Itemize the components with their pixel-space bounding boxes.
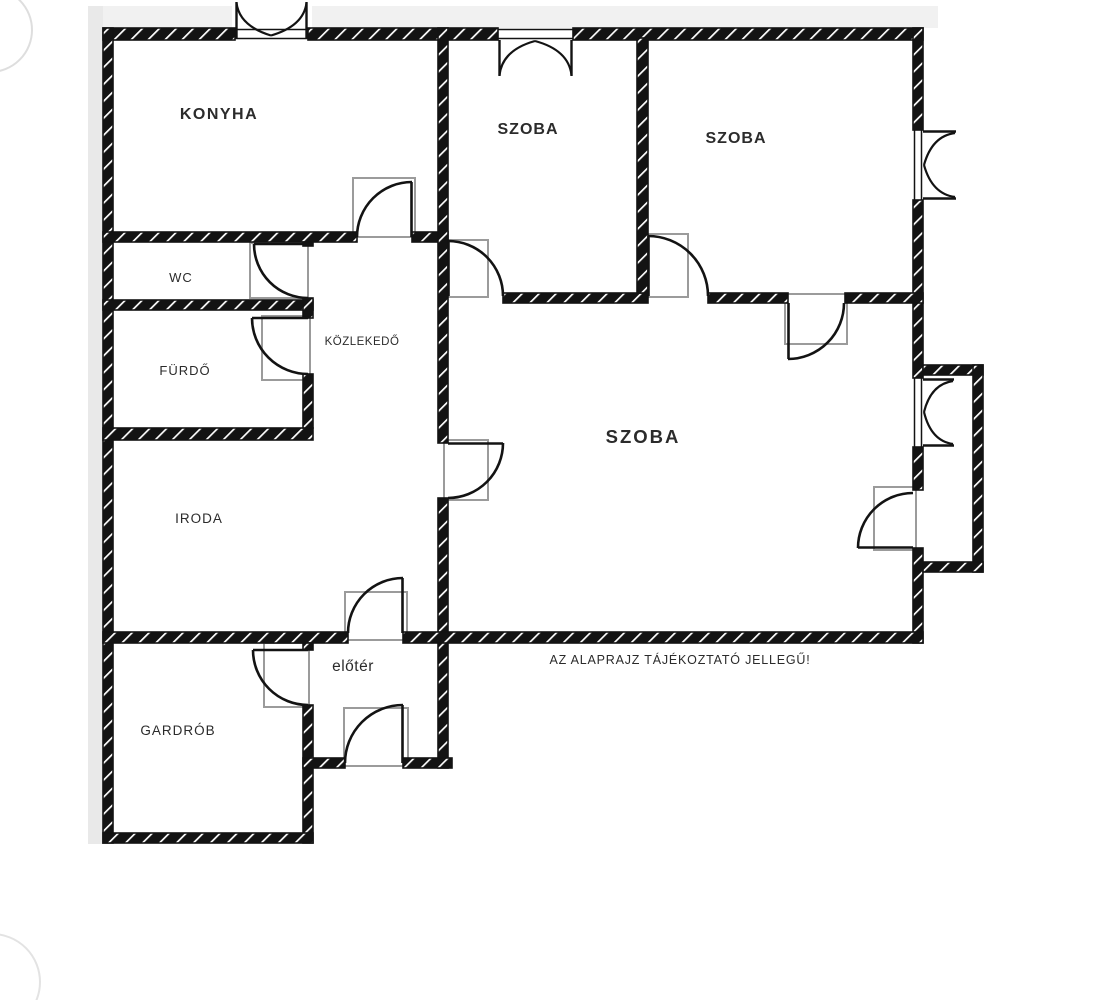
label-wc: WC [169,270,193,285]
wall-segment [303,705,313,843]
watermark-circle-top [0,0,32,72]
label-szoba-mid: SZOBA [498,121,559,138]
interior-gardrob [103,643,313,843]
wall-segment [303,374,313,428]
wall-segment [913,548,923,643]
label-szoba-nagy: SZOBA [606,426,681,447]
watermark-circle-bottom [0,934,40,1000]
label-kozlekedo: KÖZLEKEDŐ [325,334,400,348]
label-gardrob: GARDRÓB [140,723,215,738]
wall-segment [103,232,357,242]
wall-segment [913,447,923,490]
label-furdo: FÜRDŐ [159,363,210,378]
interior-window-top [232,0,312,29]
label-szoba-right: SZOBA [706,130,767,147]
wall-segment [913,28,923,130]
wall-segment [913,200,923,378]
interior-bay [920,373,980,565]
wall-segment [708,293,788,303]
label-iroda: IRODA [175,511,223,526]
wall-segment [103,300,313,310]
interior-eloter [303,643,453,768]
wall-segment [573,28,923,40]
wall-segment [103,833,313,843]
wall-segment [403,632,923,643]
wall-segment [103,28,235,40]
disclaimer-text: AZ ALAPRAJZ TÁJÉKOZTATÓ JELLEGŰ! [549,652,810,667]
label-eloter: előtér [332,658,374,675]
label-konyha: KONYHA [180,106,258,123]
wall-segment [303,298,313,318]
floor-plan-drawing: KONYHA SZOBA SZOBA WC FÜRDŐ KÖZLEKEDŐ SZ… [0,0,1103,1000]
wall-segment [403,758,452,768]
wall-segment [103,632,348,643]
wall-segment [438,28,448,443]
wall-segment [303,758,345,768]
wall-segment [637,38,648,293]
wall-segment [103,428,313,440]
wall-segment [845,293,923,303]
wall-segment [973,365,983,572]
wall-segment [923,562,983,572]
wall-segment [503,293,648,303]
floor-plan-page: KONYHA SZOBA SZOBA WC FÜRDŐ KÖZLEKEDŐ SZ… [0,0,1103,1000]
wall-segment [308,28,498,40]
